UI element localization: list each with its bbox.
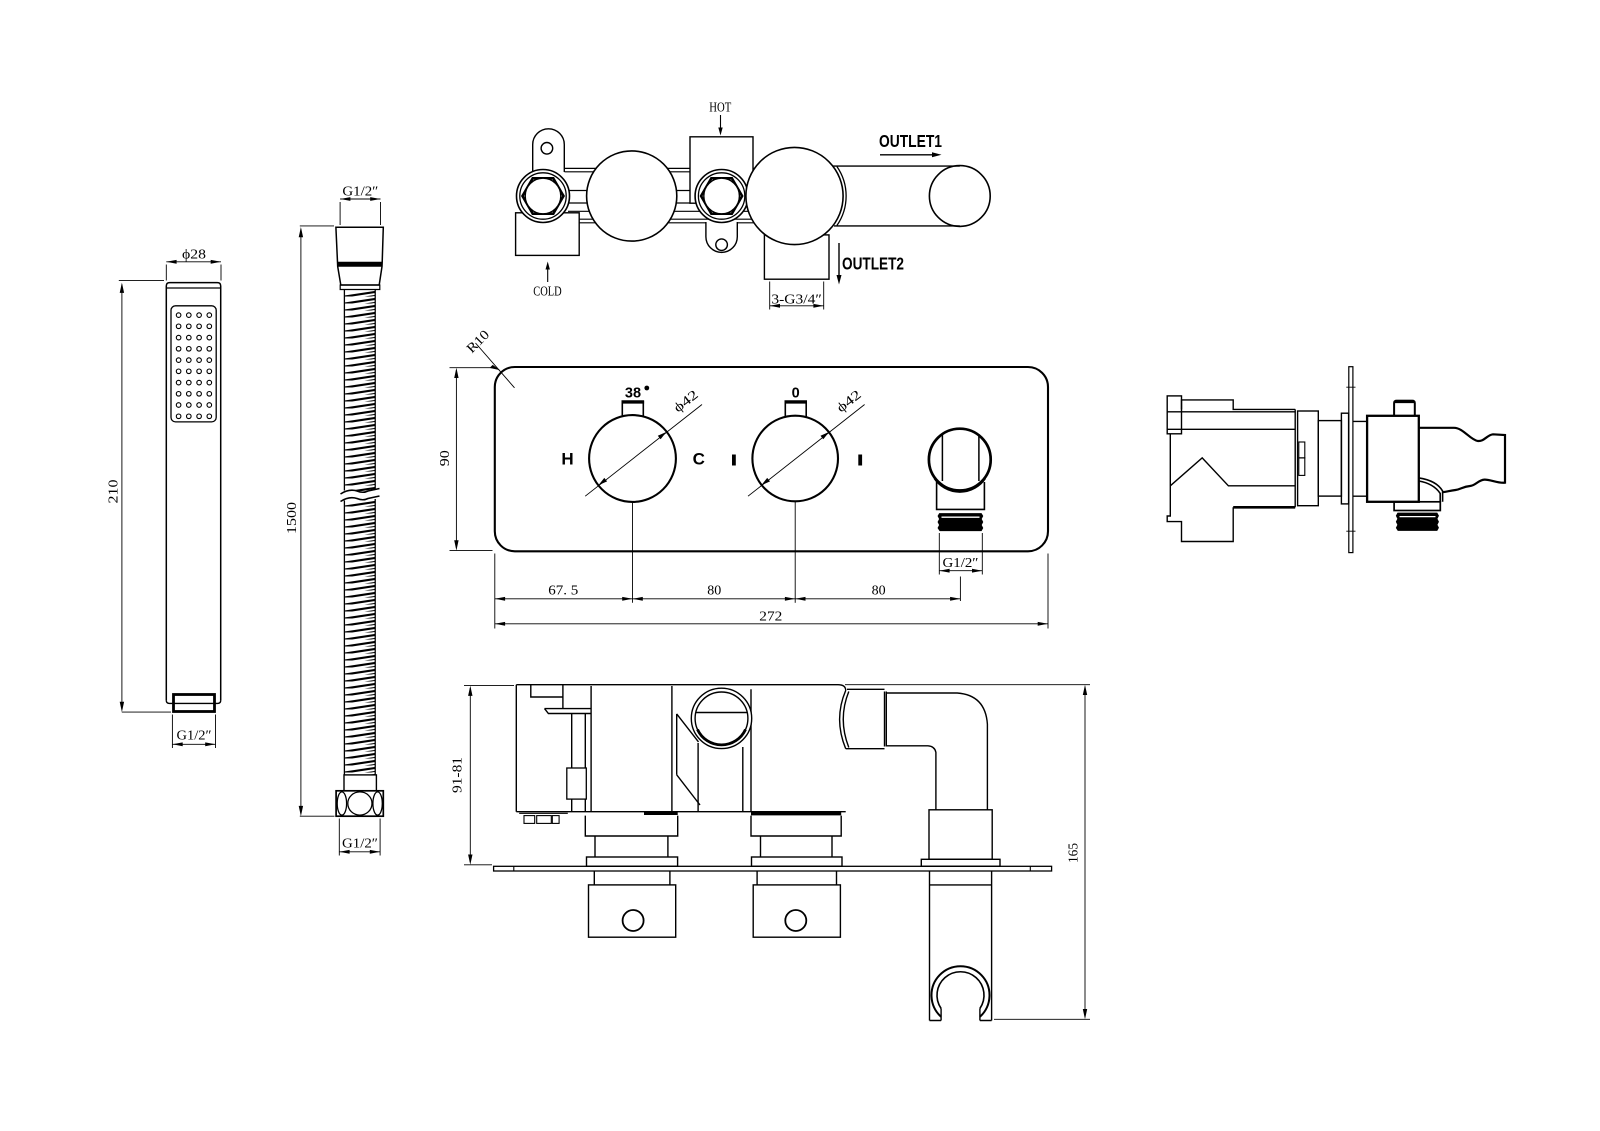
svg-text:OUTLET1: OUTLET1 [879,131,942,151]
svg-text:HOT: HOT [709,101,731,116]
svg-text:1500: 1500 [284,502,299,534]
svg-text:67. 5: 67. 5 [548,583,578,598]
svg-text:38: 38 [625,386,641,402]
svg-text:80: 80 [872,583,886,598]
svg-text:COLD: COLD [533,285,562,300]
svg-text:90: 90 [437,450,452,466]
svg-text:3-G3/4″: 3-G3/4″ [771,292,822,307]
svg-text:80: 80 [707,583,721,598]
svg-text:210: 210 [106,479,121,503]
svg-text:165: 165 [1066,843,1081,863]
svg-text:OUTLET2: OUTLET2 [842,254,904,274]
svg-text:H: H [561,450,573,469]
svg-text:ϕ28: ϕ28 [182,247,206,262]
svg-text:G1/2″: G1/2″ [342,184,378,199]
svg-text:G1/2″: G1/2″ [342,836,378,851]
svg-text:91-81: 91-81 [450,757,465,793]
svg-text:0: 0 [792,386,800,402]
svg-text:C: C [693,450,705,469]
svg-text:272: 272 [759,608,782,623]
svg-text:G1/2″: G1/2″ [177,728,212,743]
svg-text:G1/2″: G1/2″ [943,555,979,570]
